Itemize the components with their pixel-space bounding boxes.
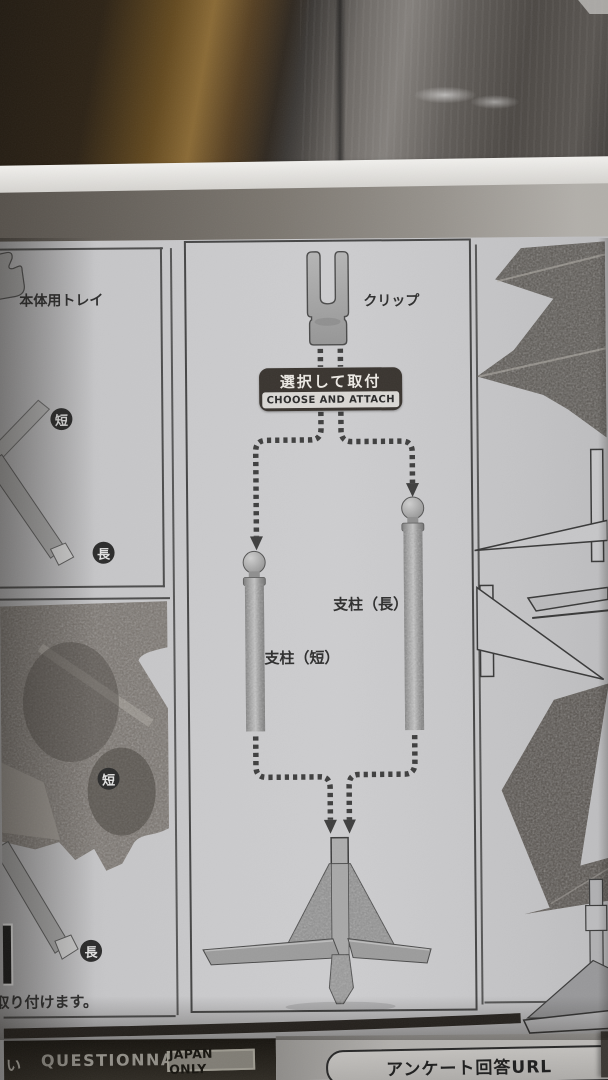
badge-short-photo: 短 bbox=[97, 768, 119, 790]
left-shadow bbox=[0, 238, 95, 1080]
badge-long: 長 bbox=[92, 542, 114, 564]
pillar-short-label: 支柱（短） bbox=[264, 647, 339, 669]
right-shadow bbox=[598, 238, 608, 1038]
clip-illustration bbox=[307, 252, 349, 345]
choose-attach-banner: 選択して取付 CHOOSE AND ATTACH bbox=[259, 367, 402, 411]
japan-only-badge: JAPAN ONLY bbox=[167, 1049, 256, 1072]
pillar-long-label: 支柱（長） bbox=[333, 593, 408, 615]
instruction-sheet-photo: 本体用トレイ 短 長 クリップ 選択して取付 CHOOSE AND ATTACH… bbox=[0, 0, 608, 1080]
clip-label: クリップ bbox=[363, 290, 419, 310]
flow-arrows bbox=[252, 348, 415, 820]
banner-en-text: CHOOSE AND ATTACH bbox=[262, 391, 399, 408]
banner-jp-text: 選択して取付 bbox=[262, 369, 399, 392]
pillar-short-illustration bbox=[243, 551, 267, 731]
stand-lineart bbox=[474, 449, 608, 680]
base-illustration bbox=[202, 837, 432, 1013]
questionnaire-url-label: アンケート回答URL bbox=[386, 1052, 552, 1080]
wing-photo-top bbox=[476, 241, 607, 438]
bottom-shadow bbox=[0, 996, 608, 1040]
questionnaire-url-pill: アンケート回答URL bbox=[326, 1045, 608, 1080]
